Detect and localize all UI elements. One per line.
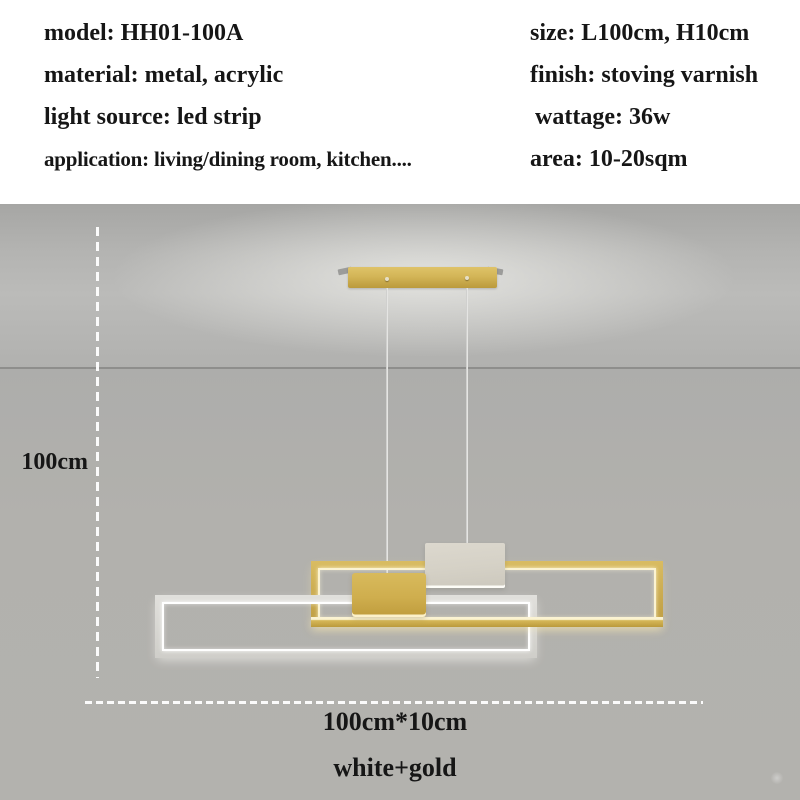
gold-driver-box [352, 573, 426, 617]
width-dimension-line [85, 701, 703, 704]
spec-finish: finish: stoving varnish [530, 54, 758, 96]
height-dimension-label: 100cm [18, 449, 88, 475]
spec-material: material: metal, acrylic [44, 54, 412, 96]
suspension-wire-right [466, 288, 468, 544]
height-dimension-line [96, 227, 99, 678]
watermark-smudge [770, 772, 784, 784]
white-driver-box [425, 543, 505, 588]
spec-wattage: wattage: 36w [530, 96, 758, 138]
suspension-wire-left [386, 288, 388, 574]
spec-application: application: living/dining room, kitchen… [44, 138, 412, 180]
spec-size: size: L100cm, H10cm [530, 12, 758, 54]
product-spec-image: model: HH01-100A material: metal, acryli… [0, 0, 800, 800]
color-variant-label: white+gold [0, 753, 790, 783]
gold-ceiling-canopy [348, 267, 497, 288]
gold-frame-bottom-bar [311, 617, 663, 627]
fixture-size-label: 100cm*10cm [0, 707, 790, 737]
spec-light-source: light source: led strip [44, 96, 412, 138]
spec-area: area: 10-20sqm [530, 138, 758, 180]
spec-column-left: model: HH01-100A material: metal, acryli… [44, 12, 412, 180]
spec-column-right: size: L100cm, H10cm finish: stoving varn… [530, 12, 758, 180]
canopy-screw-left [385, 277, 389, 281]
canopy-screw-right [465, 276, 469, 280]
spec-model: model: HH01-100A [44, 12, 412, 54]
